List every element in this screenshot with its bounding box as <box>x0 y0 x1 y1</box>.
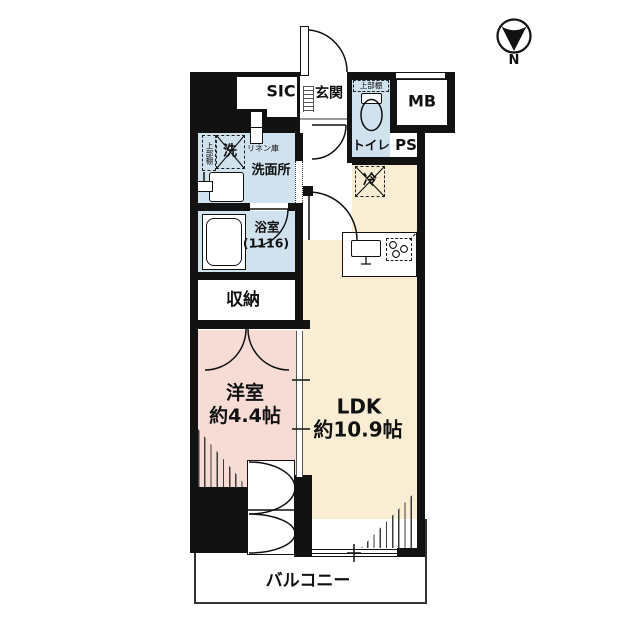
toilet-shelf-label: 上部棚 <box>360 82 383 90</box>
bathroom-label: 浴室 <box>254 220 279 233</box>
washroom-shelf-label: 上部棚 <box>205 142 213 165</box>
compass-circle <box>498 20 531 53</box>
genkan-step-line <box>300 118 347 120</box>
genkan-step-tiles <box>303 86 314 112</box>
balcony-label: バルコニー <box>266 573 351 591</box>
mb-top-vent <box>396 73 445 79</box>
western-room-label: 洋室 <box>226 384 264 404</box>
genkan-label: 玄関 <box>315 87 343 102</box>
washroom-pocket-door <box>295 161 303 203</box>
storage-label: 収納 <box>226 292 260 310</box>
wall-washroom-right-lower <box>295 202 303 322</box>
wall-under-toilet <box>352 157 425 165</box>
wall-mb-right <box>447 72 455 133</box>
wall-bath-left <box>198 203 250 211</box>
wall-toilet-mb <box>390 80 397 125</box>
linen-label: リネン庫 <box>247 145 279 153</box>
fridge-label: 冷 <box>363 174 377 189</box>
wall-right <box>417 125 425 557</box>
kitchen-sink <box>351 240 381 257</box>
ps-label: PS <box>395 138 417 154</box>
toilet-tank <box>361 93 382 104</box>
front-door-arc <box>309 30 347 72</box>
north-compass <box>498 20 531 53</box>
bathtub-inner <box>206 218 242 266</box>
wall-storage-bottom <box>190 320 310 329</box>
mb-label: MB <box>408 94 436 111</box>
ldk-size-label: 約10.9帖 <box>313 420 402 441</box>
toilet-label: トイレ <box>352 138 390 151</box>
washer-label: 洗 <box>223 145 237 160</box>
bath-door-opening <box>250 203 288 211</box>
sic-area <box>237 77 267 109</box>
wall-partition-bottom-block <box>294 475 312 557</box>
floor-plan: SIC 玄関 上部棚 トイレ MB PS 上部棚 洗 リネン庫 洗面所 浴室 (… <box>0 0 640 640</box>
wall-left <box>190 72 198 507</box>
compass-north-label: N <box>509 54 520 68</box>
wall-washroom-right-upper <box>295 133 303 162</box>
compass-needle <box>502 27 527 52</box>
sic-label: SIC <box>266 84 295 101</box>
linen-cabinet-shelf-line <box>251 127 262 128</box>
vanity-faucet <box>197 181 213 192</box>
wall-bath-right <box>288 203 295 211</box>
sliding-partition-track <box>296 331 303 477</box>
western-room-size-label: 約4.4帖 <box>209 407 281 427</box>
washroom-label: 洗面所 <box>251 164 290 178</box>
bathroom-size-label: (1116) <box>243 236 289 249</box>
wall-storage-top <box>190 272 303 280</box>
wall-mass-bottom-left <box>190 487 248 553</box>
western-room-door <box>247 460 295 555</box>
front-door-leaf <box>300 26 309 76</box>
ldk-balcony-window-midline <box>312 553 397 554</box>
vanity-sink <box>209 172 244 202</box>
ldk-label: LDK <box>337 397 382 418</box>
wall-ldk-bottom-right <box>397 548 425 557</box>
kitchen-stove <box>386 238 412 261</box>
